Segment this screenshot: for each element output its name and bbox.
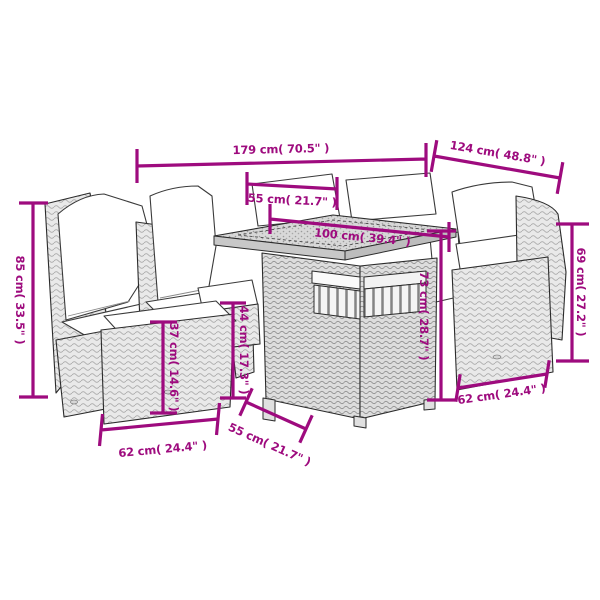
back-row-pillow-right xyxy=(346,173,436,221)
table-shelf-slats-front xyxy=(314,285,360,319)
dim-overall-width-label: 179 cm( 70.5" ) xyxy=(232,141,329,157)
dim-backrest-height-left-label: 85 cm( 33.5" ) xyxy=(13,256,27,345)
right-corner-chair xyxy=(452,182,566,390)
dim-table-height-label: 73 cm( 28.7" ) xyxy=(417,272,431,361)
dim-seat-height-label: 44 cm( 17.3" ) xyxy=(237,306,251,395)
dim-backrest-height-left: 85 cm( 33.5" ) xyxy=(13,203,48,397)
dim-seat-width-left-label: 62 cm( 24.4" ) xyxy=(118,438,208,460)
left-corner-chair-tag xyxy=(71,400,78,404)
dim-backrest-height-right-label: 69 cm( 27.2" ) xyxy=(574,248,588,337)
dim-overall-depth-label: 124 cm( 48.8" ) xyxy=(449,138,547,168)
dim-ottoman-height-label: 37 cm( 14.6" ) xyxy=(167,323,181,412)
right-corner-chair-tag xyxy=(493,355,501,359)
table-shelf-slats-right xyxy=(364,283,426,317)
product-dimension-image: 179 cm( 70.5" ) 124 cm( 48.8" ) 55 cm( 2… xyxy=(0,0,600,600)
table-leg-front xyxy=(354,416,366,428)
dimension-diagram-canvas: 179 cm( 70.5" ) 124 cm( 48.8" ) 55 cm( 2… xyxy=(0,0,600,600)
right-corner-chair-base xyxy=(452,257,553,390)
mid-left-chair-back-cushion xyxy=(150,186,216,302)
